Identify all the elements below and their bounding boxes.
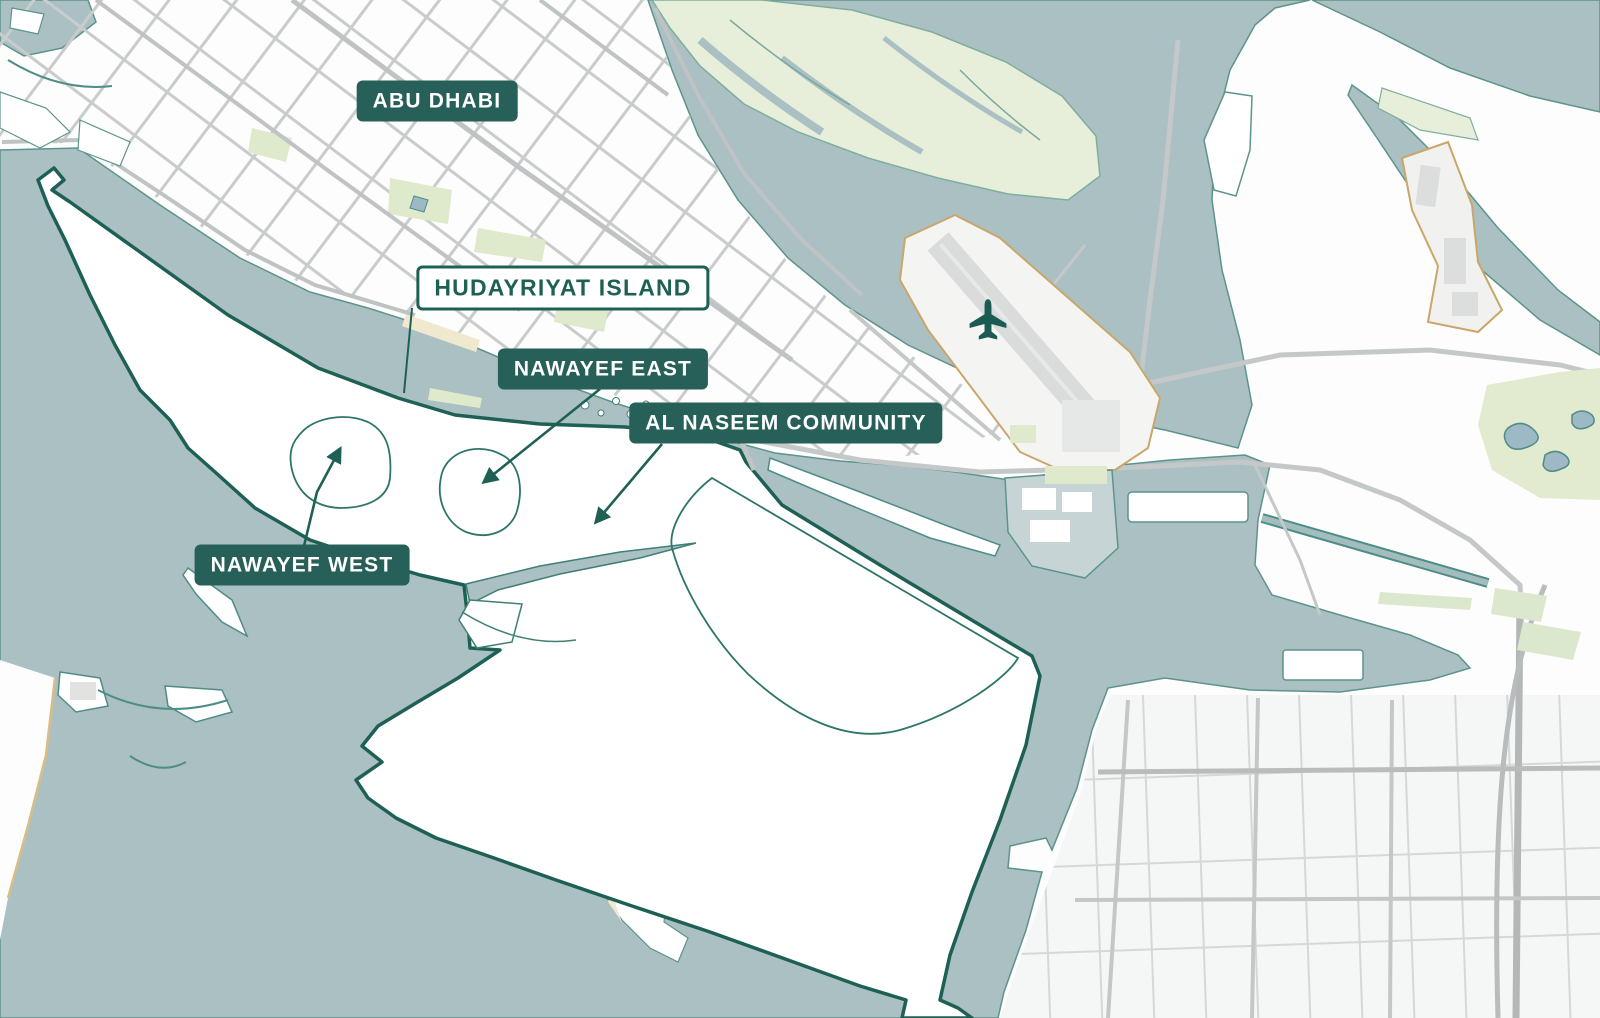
inlet-pier (1283, 650, 1363, 680)
label-nawayef-west: NAWAYEF WEST (195, 545, 410, 586)
label-hudayriyat-island: HUDAYRIYAT ISLAND (416, 266, 709, 311)
label-abu-dhabi: ABU DHABI (357, 81, 518, 122)
islet-compound (70, 682, 96, 700)
label-nawayef-east: NAWAYEF EAST (498, 349, 708, 390)
map-canvas[interactable]: ABU DHABI HUDAYRIYAT ISLAND NAWAYEF EAST… (0, 0, 1600, 1018)
airport-terminal (1062, 400, 1120, 452)
port-pier (1128, 492, 1248, 522)
label-al-naseem-community: AL NASEEM COMMUNITY (629, 403, 942, 444)
map-graphics (0, 0, 1600, 1018)
